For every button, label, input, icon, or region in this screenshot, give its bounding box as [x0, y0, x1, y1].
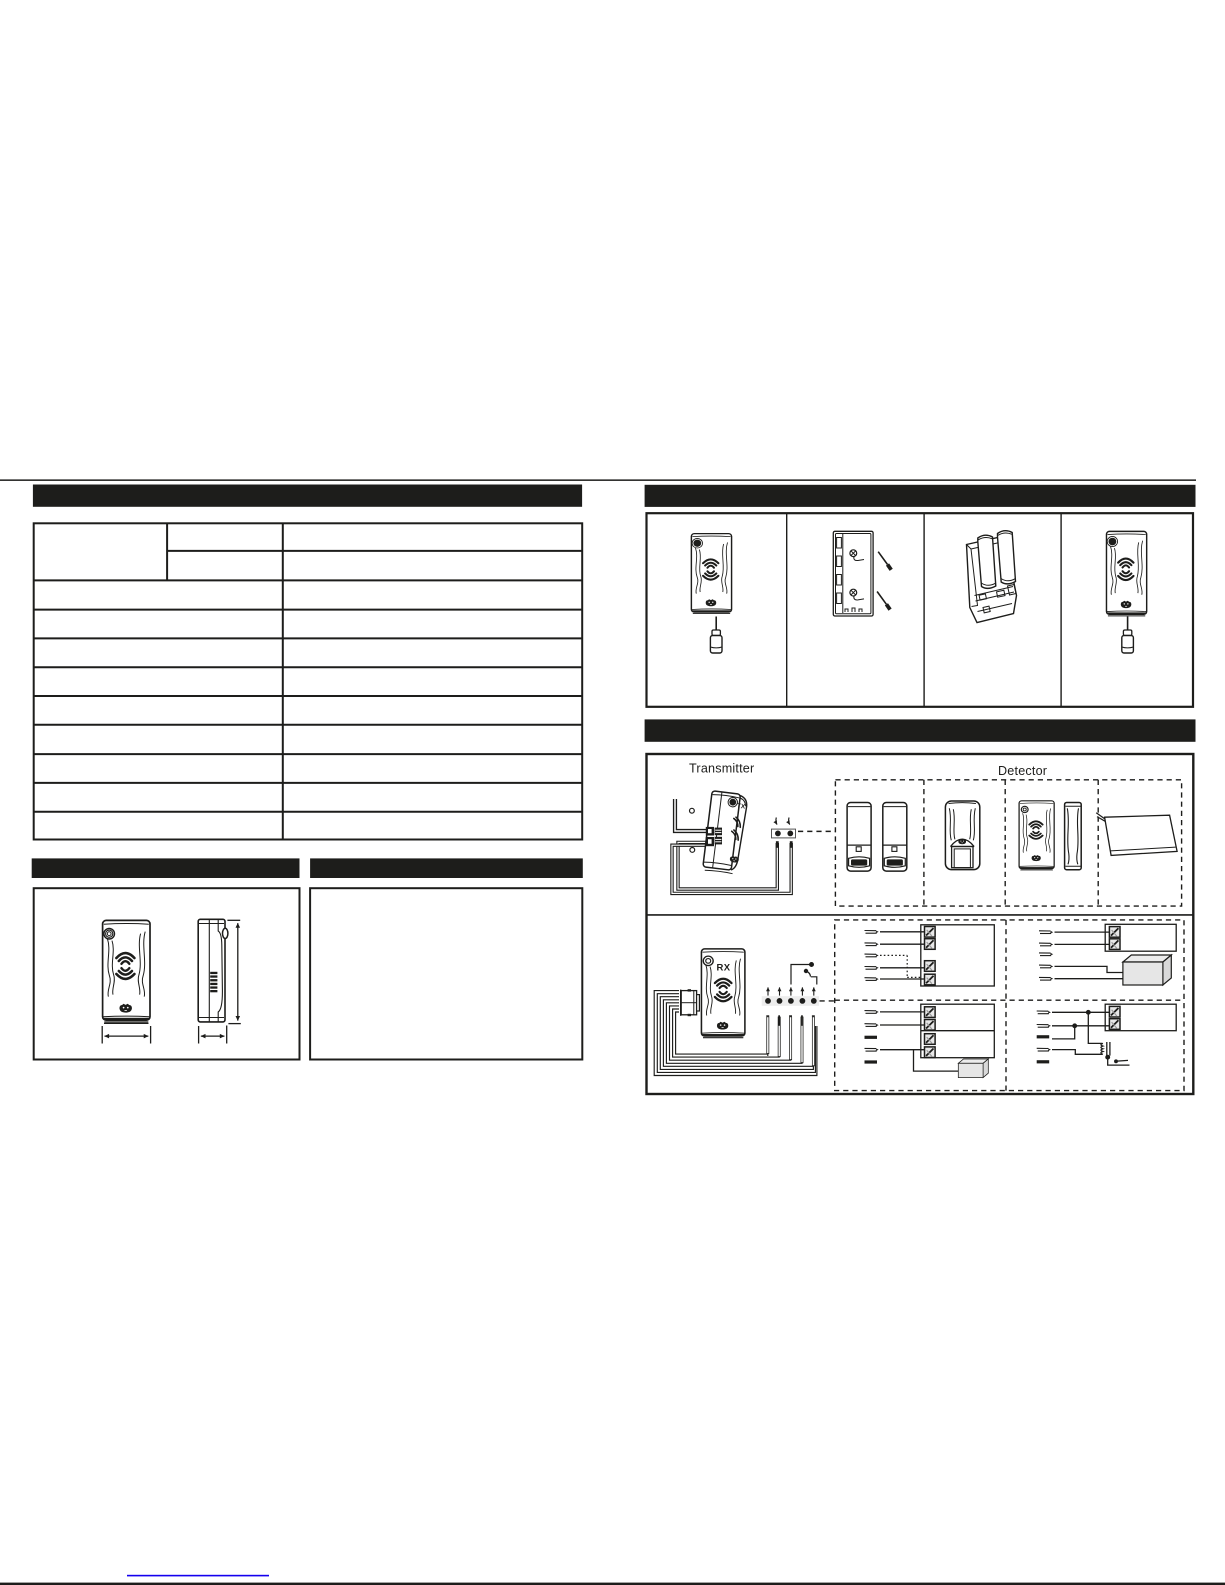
svg-text:Transmitter: Transmitter — [689, 762, 754, 776]
svg-text:TX: TX — [736, 803, 746, 811]
svg-text:Detector: Detector — [998, 764, 1047, 778]
svg-text:RX: RX — [717, 963, 731, 974]
